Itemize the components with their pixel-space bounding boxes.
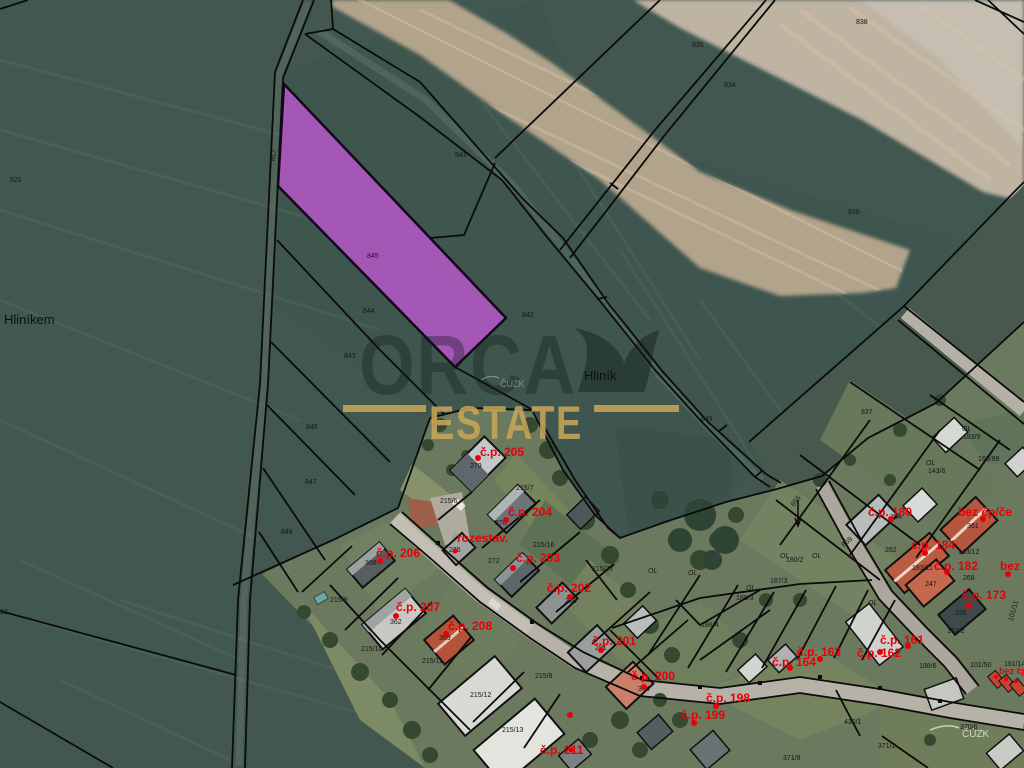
svg-text:OL: OL — [926, 460, 935, 467]
svg-text:268: 268 — [963, 575, 975, 582]
svg-text:835: 835 — [692, 42, 704, 49]
svg-text:215/7: 215/7 — [516, 485, 534, 492]
svg-text:838: 838 — [856, 19, 868, 26]
svg-text:843: 843 — [344, 353, 356, 360]
svg-text:183/11: 183/11 — [912, 565, 933, 572]
svg-text:22: 22 — [0, 609, 8, 616]
svg-text:430/1: 430/1 — [844, 719, 862, 726]
svg-text:OL: OL — [868, 600, 877, 607]
svg-text:247: 247 — [925, 581, 937, 588]
svg-text:ESTATE: ESTATE — [429, 396, 583, 449]
svg-text:371/9: 371/9 — [783, 755, 801, 762]
svg-text:361: 361 — [967, 523, 979, 530]
svg-text:OL: OL — [780, 553, 789, 560]
svg-text:215/6: 215/6 — [440, 498, 458, 505]
svg-text:279: 279 — [470, 463, 482, 470]
svg-text:187/3: 187/3 — [770, 578, 788, 585]
svg-text:ČÚZK: ČÚZK — [962, 727, 990, 740]
svg-text:834: 834 — [724, 82, 736, 89]
svg-text:č.p. 182: č.p. 182 — [934, 559, 978, 573]
svg-text:848: 848 — [281, 529, 293, 536]
svg-text:841: 841 — [455, 152, 467, 159]
svg-text:143/12: 143/12 — [958, 549, 980, 556]
svg-text:215/77: 215/77 — [592, 566, 614, 573]
svg-text:Hliníkem: Hliníkem — [4, 312, 55, 327]
svg-text:ČÚZK: ČÚZK — [500, 379, 525, 389]
svg-text:OL: OL — [962, 426, 971, 433]
svg-text:521: 521 — [10, 177, 22, 184]
svg-text:368: 368 — [365, 560, 377, 567]
svg-text:bez čp/če: bez čp/če — [958, 505, 1012, 519]
svg-text:č.p. 207: č.p. 207 — [396, 600, 440, 614]
svg-text:215/8: 215/8 — [535, 673, 553, 680]
svg-text:OL: OL — [812, 553, 821, 560]
svg-text:849: 849 — [701, 416, 713, 423]
svg-text:č.p. 206: č.p. 206 — [376, 546, 420, 560]
svg-text:272: 272 — [488, 558, 500, 565]
svg-text:837: 837 — [861, 409, 873, 416]
svg-text:198/6: 198/6 — [919, 663, 937, 670]
svg-text:143/6: 143/6 — [928, 468, 946, 475]
svg-text:OL: OL — [648, 568, 657, 575]
svg-text:847: 847 — [305, 479, 317, 486]
svg-text:č.p. 198: č.p. 198 — [706, 691, 750, 705]
svg-text:215/9: 215/9 — [330, 597, 348, 604]
svg-text:č.p. 184: č.p. 184 — [911, 538, 955, 552]
svg-text:č.p. 202: č.p. 202 — [547, 581, 591, 595]
svg-text:OL: OL — [688, 570, 697, 577]
svg-text:215/12: 215/12 — [470, 692, 492, 699]
svg-text:183/9: 183/9 — [963, 434, 981, 441]
svg-text:846: 846 — [306, 424, 318, 431]
svg-text:262: 262 — [885, 547, 897, 554]
svg-text:188/3: 188/3 — [736, 595, 754, 602]
svg-text:bez: bez — [1000, 559, 1020, 573]
svg-text:163/99: 163/99 — [978, 456, 1000, 463]
svg-text:163/2: 163/2 — [947, 628, 965, 635]
svg-text:101/50: 101/50 — [970, 662, 992, 669]
svg-text:215/10: 215/10 — [361, 646, 383, 653]
svg-text:215/11: 215/11 — [422, 658, 443, 665]
svg-text:845: 845 — [367, 253, 379, 260]
svg-text:215/16: 215/16 — [533, 542, 555, 549]
svg-text:235: 235 — [955, 610, 967, 617]
svg-text:362: 362 — [390, 619, 402, 626]
svg-text:836: 836 — [848, 209, 860, 216]
svg-text:844: 844 — [363, 308, 375, 315]
svg-text:371/2: 371/2 — [878, 743, 896, 750]
svg-text:č.p. 208: č.p. 208 — [448, 619, 492, 633]
svg-text:188/4: 188/4 — [701, 622, 719, 629]
svg-text:rozestav.: rozestav. — [457, 531, 508, 545]
svg-text:č.p. 199: č.p. 199 — [681, 708, 725, 722]
svg-text:č.p. 211: č.p. 211 — [540, 743, 584, 757]
svg-text:č.p. 173: č.p. 173 — [962, 588, 1006, 602]
svg-text:č.p. 204: č.p. 204 — [508, 505, 552, 519]
svg-text:bez čp: bez čp — [999, 666, 1024, 676]
svg-text:215/13: 215/13 — [502, 727, 524, 734]
svg-text:č.p. 161: č.p. 161 — [880, 633, 924, 647]
svg-text:č.p. 203: č.p. 203 — [516, 551, 560, 565]
svg-text:OL: OL — [746, 585, 755, 592]
svg-text:č.p. 201: č.p. 201 — [592, 634, 636, 648]
svg-text:č.p. 200: č.p. 200 — [631, 669, 675, 683]
